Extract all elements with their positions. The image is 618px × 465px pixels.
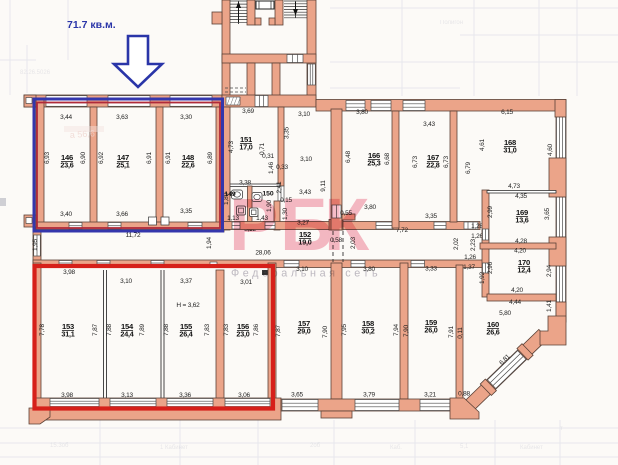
svg-text:6,92: 6,92 xyxy=(98,151,105,163)
svg-text:2,02: 2,02 xyxy=(453,237,460,249)
svg-text:22,8: 22,8 xyxy=(426,161,439,170)
svg-text:6,93: 6,93 xyxy=(44,151,51,163)
svg-text:7,90: 7,90 xyxy=(403,324,410,336)
svg-text:1,94: 1,94 xyxy=(206,236,213,248)
svg-text:5,1: 5,1 xyxy=(460,444,469,450)
svg-text:4,20: 4,20 xyxy=(514,248,526,255)
svg-text:3,69: 3,69 xyxy=(242,108,254,115)
svg-text:0,11: 0,11 xyxy=(457,327,464,339)
svg-text:1 Кабинет: 1 Кабинет xyxy=(160,445,188,451)
svg-text:2,94: 2,94 xyxy=(546,264,553,276)
svg-text:23,6: 23,6 xyxy=(60,161,73,170)
svg-text:3,10: 3,10 xyxy=(298,111,310,118)
svg-text:3,37: 3,37 xyxy=(180,278,192,285)
svg-text:31,1: 31,1 xyxy=(61,330,74,339)
svg-text:3,35: 3,35 xyxy=(180,208,192,215)
svg-text:3,98: 3,98 xyxy=(63,269,75,276)
svg-text:3,65: 3,65 xyxy=(544,207,551,219)
svg-text:3,43: 3,43 xyxy=(423,121,435,128)
svg-text:5,80: 5,80 xyxy=(499,310,511,317)
svg-text:Н = 3,62: Н = 3,62 xyxy=(176,302,200,309)
svg-text:6,73: 6,73 xyxy=(412,155,419,167)
svg-text:4,35: 4,35 xyxy=(515,193,527,200)
svg-text:17,0: 17,0 xyxy=(239,143,252,152)
svg-text:7,83: 7,83 xyxy=(223,323,230,335)
svg-text:26,4: 26,4 xyxy=(179,330,192,339)
svg-text:7,87: 7,87 xyxy=(92,323,99,335)
svg-text:15.3об: 15.3об xyxy=(50,443,69,449)
svg-text:7,88: 7,88 xyxy=(163,323,170,335)
svg-text:22,6: 22,6 xyxy=(181,161,194,170)
svg-text:3,10: 3,10 xyxy=(120,278,132,285)
svg-text:4,44: 4,44 xyxy=(509,299,521,306)
svg-text:3,21: 3,21 xyxy=(424,392,436,399)
svg-text:29,0: 29,0 xyxy=(297,327,310,336)
svg-text:7,88: 7,88 xyxy=(106,323,113,335)
svg-text:2,23: 2,23 xyxy=(470,238,477,250)
svg-text:К: К xyxy=(324,183,370,266)
svg-text:3,35: 3,35 xyxy=(425,213,437,220)
svg-text:13,6: 13,6 xyxy=(515,216,528,225)
svg-text:7,83: 7,83 xyxy=(204,323,211,335)
svg-text:3,80: 3,80 xyxy=(356,109,368,116)
svg-text:7,89: 7,89 xyxy=(139,323,146,335)
svg-text:Полигон: Полигон xyxy=(440,20,463,26)
svg-text:3,40: 3,40 xyxy=(60,211,72,218)
svg-text:1,37: 1,37 xyxy=(463,264,475,271)
svg-text:6,48: 6,48 xyxy=(345,150,352,162)
svg-text:4,61: 4,61 xyxy=(479,138,486,150)
svg-text:3,01: 3,01 xyxy=(240,279,252,286)
svg-text:6,73: 6,73 xyxy=(443,155,450,167)
svg-text:3,66: 3,66 xyxy=(116,211,128,218)
svg-text:7,87: 7,87 xyxy=(275,324,282,336)
svg-text:3,35: 3,35 xyxy=(284,126,291,138)
svg-text:31,0: 31,0 xyxy=(503,146,516,155)
svg-text:Каб.: Каб. xyxy=(390,445,402,451)
svg-text:0,88: 0,88 xyxy=(458,391,470,398)
svg-text:Кабинет: Кабинет xyxy=(520,445,543,451)
svg-text:2,96: 2,96 xyxy=(487,261,494,273)
svg-text:Федеральная сеть: Федеральная сеть xyxy=(231,268,381,280)
svg-text:6,68: 6,68 xyxy=(384,152,391,164)
svg-text:т: т xyxy=(560,426,563,432)
svg-text:4,73: 4,73 xyxy=(228,140,235,152)
svg-text:1,41: 1,41 xyxy=(546,299,553,311)
svg-text:Р: Р xyxy=(229,183,278,266)
svg-text:4,73: 4,73 xyxy=(508,183,520,190)
svg-text:1,26: 1,26 xyxy=(464,254,476,261)
svg-text:2об: 2об xyxy=(310,443,321,449)
svg-text:3,33: 3,33 xyxy=(425,266,437,273)
svg-text:25,1: 25,1 xyxy=(116,161,129,170)
svg-text:23,0: 23,0 xyxy=(236,330,249,339)
svg-text:30,2: 30,2 xyxy=(361,327,374,336)
svg-text:3,44: 3,44 xyxy=(60,114,72,121)
svg-text:0,31: 0,31 xyxy=(262,153,274,160)
svg-text:6,15: 6,15 xyxy=(501,109,513,116)
svg-text:25,3: 25,3 xyxy=(367,159,380,168)
svg-text:6,91: 6,91 xyxy=(165,151,172,163)
svg-text:6,89: 6,89 xyxy=(207,151,214,163)
svg-text:71.7 кв.м.: 71.7 кв.м. xyxy=(67,19,116,31)
svg-text:1,95: 1,95 xyxy=(32,238,39,250)
svg-text:3,10: 3,10 xyxy=(300,156,312,163)
svg-text:0,33: 0,33 xyxy=(276,164,288,171)
svg-text:12,4: 12,4 xyxy=(517,266,530,275)
svg-text:4,28: 4,28 xyxy=(515,238,527,245)
svg-text:3,79: 3,79 xyxy=(363,392,375,399)
svg-text:3,63: 3,63 xyxy=(116,114,128,121)
svg-text:6,79: 6,79 xyxy=(465,161,472,173)
svg-text:7,91: 7,91 xyxy=(448,325,455,337)
svg-text:24,4: 24,4 xyxy=(120,330,133,339)
svg-text:7,78: 7,78 xyxy=(39,323,46,335)
svg-text:7,86: 7,86 xyxy=(253,323,260,335)
svg-text:4,60: 4,60 xyxy=(547,143,554,155)
svg-text:6,90: 6,90 xyxy=(80,151,87,163)
svg-text:1,46: 1,46 xyxy=(268,161,275,173)
svg-text:4,20: 4,20 xyxy=(511,287,523,294)
svg-text:11,72: 11,72 xyxy=(126,232,141,239)
svg-text:3,65: 3,65 xyxy=(291,392,303,399)
svg-text:6,91: 6,91 xyxy=(146,151,153,163)
svg-text:26,0: 26,0 xyxy=(424,326,437,335)
svg-text:82.26.5026: 82.26.5026 xyxy=(20,70,51,76)
svg-text:26,6: 26,6 xyxy=(486,328,499,337)
svg-text:1,92: 1,92 xyxy=(479,271,486,283)
svg-text:2,99: 2,99 xyxy=(487,205,494,217)
svg-text:7,95: 7,95 xyxy=(341,323,348,335)
svg-text:7,90: 7,90 xyxy=(322,325,329,337)
svg-text:7,94: 7,94 xyxy=(393,323,400,335)
svg-text:3,30: 3,30 xyxy=(180,114,192,121)
